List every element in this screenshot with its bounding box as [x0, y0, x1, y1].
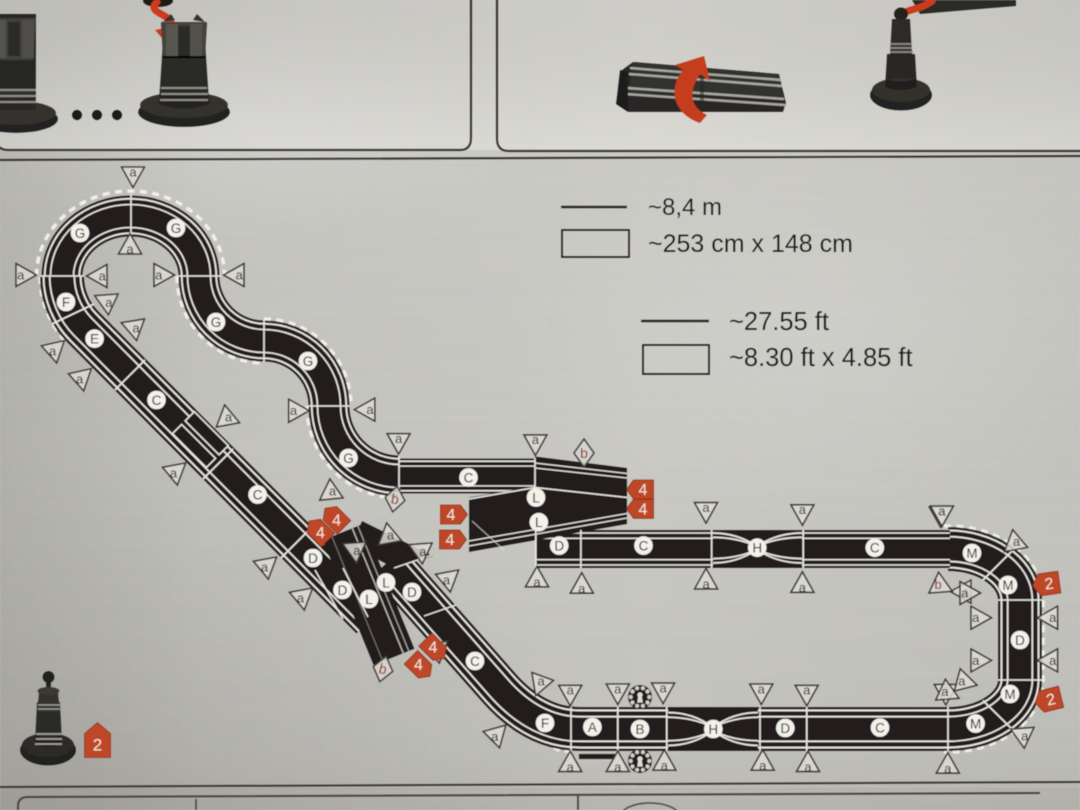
svg-text:a: a: [225, 409, 233, 424]
svg-text:a: a: [972, 653, 980, 668]
svg-text:M: M: [1002, 578, 1013, 593]
svg-text:M: M: [1004, 687, 1015, 702]
svg-text:a: a: [419, 544, 427, 559]
svg-text:a: a: [537, 674, 545, 689]
svg-text:a: a: [944, 761, 952, 776]
svg-text:~8.30 ft x 4.85 ft: ~8.30 ft x 4.85 ft: [729, 344, 913, 372]
svg-text:D: D: [554, 538, 564, 553]
svg-text:a: a: [126, 242, 134, 257]
svg-text:a: a: [958, 674, 966, 689]
svg-text:H: H: [752, 541, 762, 556]
svg-text:a: a: [799, 580, 807, 595]
svg-text:a: a: [659, 680, 667, 695]
svg-text:a: a: [105, 295, 113, 310]
svg-text:L: L: [532, 490, 540, 505]
svg-text:D: D: [780, 721, 790, 736]
svg-text:a: a: [366, 402, 374, 417]
svg-text:D: D: [407, 585, 417, 600]
svg-text:M: M: [970, 716, 981, 731]
svg-text:a: a: [132, 321, 140, 336]
svg-text:A: A: [588, 720, 597, 735]
svg-text:a: a: [387, 527, 395, 542]
svg-text:a: a: [941, 684, 949, 699]
svg-text:B: B: [635, 722, 644, 737]
svg-text:a: a: [702, 577, 710, 592]
svg-text:b: b: [580, 445, 588, 461]
svg-text:~253 cm x 148 cm: ~253 cm x 148 cm: [648, 230, 853, 258]
svg-text:a: a: [614, 759, 622, 774]
svg-text:F: F: [62, 295, 70, 310]
svg-text:a: a: [702, 500, 710, 515]
svg-text:a: a: [803, 683, 811, 698]
svg-text:C: C: [470, 654, 480, 669]
svg-text:M: M: [966, 546, 977, 561]
svg-text:D: D: [308, 551, 318, 566]
svg-text:a: a: [329, 484, 337, 499]
svg-text:a: a: [804, 759, 812, 774]
svg-text:a: a: [1013, 534, 1021, 549]
svg-text:4: 4: [639, 501, 648, 518]
svg-text:L: L: [382, 575, 390, 590]
svg-text:a: a: [661, 758, 669, 773]
svg-text:C: C: [639, 538, 649, 553]
svg-text:a: a: [236, 268, 244, 283]
svg-text:F: F: [541, 716, 549, 731]
svg-text:4: 4: [332, 512, 341, 529]
svg-text:a: a: [491, 729, 499, 744]
svg-text:G: G: [171, 221, 182, 236]
svg-text:G: G: [211, 315, 222, 330]
svg-text:D: D: [338, 583, 348, 598]
svg-text:G: G: [75, 226, 86, 241]
svg-text:a: a: [17, 268, 25, 283]
svg-text:4: 4: [414, 657, 423, 674]
svg-text:a: a: [129, 164, 137, 179]
svg-text:G: G: [343, 451, 354, 466]
svg-text:a: a: [99, 269, 107, 284]
svg-text:C: C: [870, 541, 880, 556]
svg-text:a: a: [533, 575, 541, 590]
svg-text:a: a: [532, 432, 540, 447]
svg-text:a: a: [76, 372, 84, 387]
svg-text:b: b: [934, 577, 941, 592]
svg-text:a: a: [1049, 653, 1057, 668]
svg-text:~8,4 m: ~8,4 m: [648, 194, 722, 221]
svg-text:L: L: [365, 592, 373, 607]
svg-text:a: a: [759, 758, 767, 773]
svg-text:a: a: [297, 591, 305, 606]
svg-text:4: 4: [446, 532, 455, 549]
svg-text:H: H: [708, 722, 718, 737]
svg-text:2: 2: [93, 736, 102, 755]
svg-text:a: a: [443, 573, 451, 588]
svg-text:4: 4: [428, 639, 437, 656]
svg-text:~27.55 ft: ~27.55 ft: [729, 308, 829, 336]
svg-text:a: a: [938, 503, 946, 518]
svg-text:L: L: [535, 515, 543, 530]
svg-text:a: a: [567, 759, 575, 774]
svg-text:a: a: [961, 586, 969, 601]
svg-text:a: a: [170, 466, 178, 481]
svg-text:a: a: [567, 683, 575, 698]
svg-text:C: C: [464, 470, 474, 485]
svg-text:4: 4: [639, 482, 648, 499]
svg-text:D: D: [1015, 633, 1025, 648]
svg-text:a: a: [972, 610, 980, 625]
svg-text:G: G: [303, 354, 314, 369]
svg-text:E: E: [90, 332, 99, 347]
svg-text:4: 4: [447, 507, 456, 524]
svg-text:C: C: [875, 720, 885, 735]
svg-text:a: a: [353, 543, 361, 558]
svg-text:a: a: [1049, 610, 1057, 625]
svg-text:a: a: [155, 268, 163, 283]
svg-text:a: a: [290, 403, 298, 418]
svg-text:a: a: [799, 502, 807, 517]
svg-text:a: a: [578, 581, 586, 596]
svg-text:a: a: [395, 431, 403, 446]
svg-text:a: a: [261, 560, 269, 575]
svg-text:a: a: [1021, 728, 1029, 743]
svg-text:C: C: [253, 487, 263, 502]
svg-text:a: a: [614, 681, 622, 696]
svg-text:a: a: [758, 681, 766, 696]
svg-text:C: C: [152, 393, 162, 408]
svg-text:4: 4: [316, 525, 325, 542]
svg-text:a: a: [49, 344, 57, 359]
